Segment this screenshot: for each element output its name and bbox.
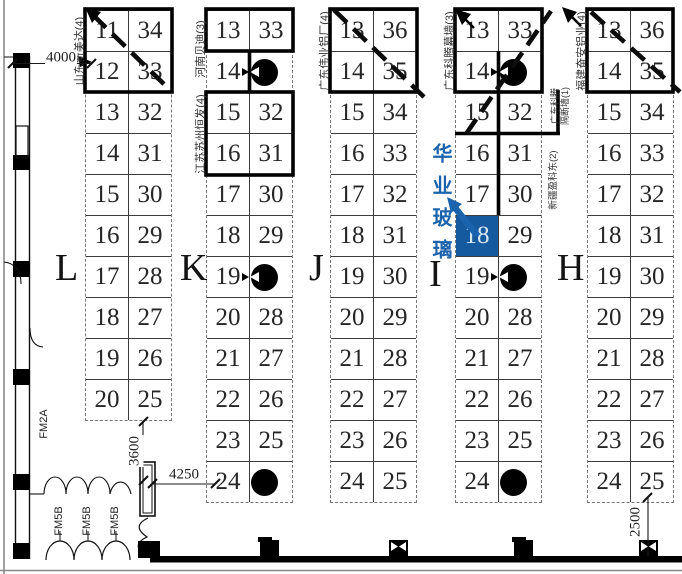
- pillar-cell-K: [250, 257, 292, 297]
- left-wall: [4, 53, 43, 559]
- booth-K-21[interactable]: 21: [207, 339, 250, 379]
- pillar-icon: [251, 469, 278, 496]
- booth-H-33[interactable]: 33: [631, 134, 673, 174]
- booth-row: 2028: [207, 297, 292, 338]
- booth-row: 2128: [588, 338, 673, 379]
- booth-row: 14: [456, 51, 541, 92]
- booth-H-15[interactable]: 15: [588, 93, 631, 133]
- booth-row: 1333: [207, 10, 292, 51]
- floorplan-canvas: 1134123313321431153016291728182719262025…: [0, 0, 682, 574]
- booth-J-22[interactable]: 22: [331, 380, 374, 420]
- exhibitor-label-i-side-line1: 广东科腾: [550, 87, 560, 125]
- booth-row: 2029: [331, 297, 416, 338]
- booth-K-23[interactable]: 23: [207, 421, 250, 461]
- booth-row: 19: [456, 256, 541, 297]
- booth-row: 1728: [86, 256, 171, 297]
- booth-J-24[interactable]: 24: [331, 462, 374, 502]
- booth-K-33[interactable]: 33: [250, 11, 292, 51]
- booth-J-19[interactable]: 19: [331, 257, 374, 297]
- booth-J-17[interactable]: 17: [331, 175, 374, 215]
- booth-row: 1532: [456, 92, 541, 133]
- booth-L-31[interactable]: 31: [129, 134, 171, 174]
- booth-row: 2425: [588, 461, 673, 502]
- pillar-cell-K: [250, 52, 292, 92]
- exhibitor-label-k-mid: 江苏苏州恒发(4): [192, 94, 208, 173]
- booth-row: 1333: [456, 10, 541, 51]
- booth-J-34[interactable]: 34: [374, 93, 416, 133]
- booth-H-20[interactable]: 20: [588, 298, 631, 338]
- booth-I-17[interactable]: 17: [456, 175, 499, 215]
- booth-H-31[interactable]: 31: [631, 216, 673, 256]
- booth-I-30[interactable]: 30: [499, 175, 541, 215]
- booth-J-25[interactable]: 25: [374, 462, 416, 502]
- booth-row: 1134: [86, 10, 171, 51]
- booth-row: 1534: [588, 92, 673, 133]
- booth-I-13[interactable]: 13: [456, 11, 499, 51]
- zone-letter-H: H: [557, 246, 584, 290]
- booth-H-34[interactable]: 34: [631, 93, 673, 133]
- booth-J-14[interactable]: 14: [331, 52, 374, 92]
- booth-row: 1431: [86, 133, 171, 174]
- booth-row: 1534: [331, 92, 416, 133]
- booth-I-26[interactable]: 26: [499, 380, 541, 420]
- booth-row: 1435: [588, 51, 673, 92]
- booth-I-28[interactable]: 28: [499, 298, 541, 338]
- booth-K-30[interactable]: 30: [250, 175, 292, 215]
- booth-L-12[interactable]: 12: [86, 52, 129, 92]
- booth-row: 2028: [456, 297, 541, 338]
- booth-row: 2025: [86, 379, 171, 420]
- booth-L-20[interactable]: 20: [86, 380, 129, 420]
- booth-row: 1332: [86, 92, 171, 133]
- booth-row: 19: [207, 256, 292, 297]
- booth-row: 1829: [207, 215, 292, 256]
- zone-H: 1336143515341633173218311930202921282227…: [587, 10, 674, 503]
- booth-row: 1629: [86, 215, 171, 256]
- callout-huaye-glass: 华业玻璃: [426, 143, 455, 271]
- booth-row: 1732: [588, 174, 673, 215]
- booth-J-32[interactable]: 32: [374, 175, 416, 215]
- booth-row: 2326: [588, 420, 673, 461]
- zone-K: 1333141532163117301829192028212722262325…: [206, 10, 293, 503]
- booth-H-24[interactable]: 24: [588, 462, 631, 502]
- booth-K-18[interactable]: 18: [207, 216, 250, 256]
- pillar-cell-K: [250, 462, 292, 502]
- booth-J-23[interactable]: 23: [331, 421, 374, 461]
- booth-row: 1827: [86, 297, 171, 338]
- booth-I-32[interactable]: 32: [499, 93, 541, 133]
- booth-row: 2227: [588, 379, 673, 420]
- booth-row: 24: [207, 461, 292, 502]
- booth-L-15[interactable]: 15: [86, 175, 129, 215]
- booth-H-22[interactable]: 22: [588, 380, 631, 420]
- booth-H-25[interactable]: 25: [631, 462, 673, 502]
- dimension-4250: 4250: [168, 467, 200, 484]
- booth-L-28[interactable]: 28: [129, 257, 171, 297]
- booth-J-29[interactable]: 29: [374, 298, 416, 338]
- booth-I-15[interactable]: 15: [456, 93, 499, 133]
- booth-H-18[interactable]: 18: [588, 216, 631, 256]
- booth-I-24[interactable]: 24: [456, 462, 499, 502]
- booth-I-27[interactable]: 27: [499, 339, 541, 379]
- booth-H-26[interactable]: 26: [631, 421, 673, 461]
- booth-I-33[interactable]: 33: [499, 11, 541, 51]
- booth-H-36[interactable]: 36: [631, 11, 673, 51]
- exhibitor-label-h-top: 福建奋安铝业(4): [573, 11, 589, 90]
- booth-K-15[interactable]: 15: [207, 93, 250, 133]
- booth-row: 2127: [456, 338, 541, 379]
- booth-K-24[interactable]: 24: [207, 462, 250, 502]
- booth-H-29[interactable]: 29: [631, 298, 673, 338]
- exhibitor-label-k-top: 河南贝迪(3): [192, 20, 208, 77]
- pillar-cell-I: [499, 462, 541, 502]
- booth-K-31[interactable]: 31: [250, 134, 292, 174]
- booth-J-31[interactable]: 31: [374, 216, 416, 256]
- zone-I: 1333141532163117301829192028212722262325…: [455, 10, 542, 503]
- booth-I-18[interactable]: 18: [456, 216, 499, 256]
- door-label-fm5b-2: FM5B: [81, 506, 93, 535]
- dimension-3600: 3600: [127, 435, 144, 467]
- exhibitor-label-i-side-line2: 隔断墙(1): [560, 87, 570, 125]
- booth-row: 1336: [331, 10, 416, 51]
- booth-row: 1631: [207, 133, 292, 174]
- booth-H-13[interactable]: 13: [588, 11, 631, 51]
- booth-J-13[interactable]: 13: [331, 11, 374, 51]
- booth-J-15[interactable]: 15: [331, 93, 374, 133]
- booth-H-19[interactable]: 19: [588, 257, 631, 297]
- zone-letter-K: K: [180, 246, 207, 290]
- booth-I-16[interactable]: 16: [456, 134, 499, 174]
- booth-H-21[interactable]: 21: [588, 339, 631, 379]
- booth-row: 14: [207, 51, 292, 92]
- booth-I-29[interactable]: 29: [499, 216, 541, 256]
- booth-row: 1831: [331, 215, 416, 256]
- booth-row: 1831: [588, 215, 673, 256]
- booth-row: 1930: [331, 256, 416, 297]
- booth-K-28[interactable]: 28: [250, 298, 292, 338]
- booth-row: 1631: [456, 133, 541, 174]
- booth-row: 1633: [588, 133, 673, 174]
- booth-K-13[interactable]: 13: [207, 11, 250, 51]
- door-label-fm2a: FM2A: [38, 409, 50, 438]
- booth-L-32[interactable]: 32: [129, 93, 171, 133]
- booth-K-29[interactable]: 29: [250, 216, 292, 256]
- door-arcs: [30, 462, 160, 560]
- booth-row: 2227: [331, 379, 416, 420]
- door-label-fm5b-3: FM5B: [109, 506, 121, 535]
- exhibitor-label-i-side: 广东科腾 隔断墙(1): [550, 87, 570, 125]
- door-label-fm5b-1: FM5B: [53, 506, 65, 535]
- booth-L-26[interactable]: 26: [129, 339, 171, 379]
- zone-J: 1336143515341633173218311930202921282227…: [330, 10, 417, 503]
- booth-row: 1435: [331, 51, 416, 92]
- pillar-icon: [251, 59, 278, 86]
- booth-row: 2127: [207, 338, 292, 379]
- booth-row: 1336: [588, 10, 673, 51]
- booth-J-21[interactable]: 21: [331, 339, 374, 379]
- booth-K-22[interactable]: 22: [207, 380, 250, 420]
- zone-letter-J: J: [309, 246, 324, 290]
- booth-row: 1829: [456, 215, 541, 256]
- booth-J-20[interactable]: 20: [331, 298, 374, 338]
- pillar-icon: [500, 264, 527, 291]
- booth-L-16[interactable]: 16: [86, 216, 129, 256]
- booth-L-13[interactable]: 13: [86, 93, 129, 133]
- booth-J-30[interactable]: 30: [374, 257, 416, 297]
- booth-K-16[interactable]: 16: [207, 134, 250, 174]
- booth-K-25[interactable]: 25: [250, 421, 292, 461]
- booth-L-33[interactable]: 33: [129, 52, 171, 92]
- booth-J-26[interactable]: 26: [374, 421, 416, 461]
- pillar-cell-I: [499, 257, 541, 297]
- booth-H-35[interactable]: 35: [631, 52, 673, 92]
- door-arc: [30, 328, 43, 347]
- booth-H-28[interactable]: 28: [631, 339, 673, 379]
- booth-H-23[interactable]: 23: [588, 421, 631, 461]
- zone-letter-L: L: [55, 246, 78, 290]
- booth-row: 2128: [331, 338, 416, 379]
- booth-row: 2226: [456, 379, 541, 420]
- booth-J-18[interactable]: 18: [331, 216, 374, 256]
- exhibitor-label-i-side2: 新疆盈科东(2): [545, 150, 559, 209]
- booth-H-16[interactable]: 16: [588, 134, 631, 174]
- booth-K-27[interactable]: 27: [250, 339, 292, 379]
- booth-row: 2326: [331, 420, 416, 461]
- door-arc: [4, 262, 21, 284]
- booth-K-17[interactable]: 17: [207, 175, 250, 215]
- pillar-cell-I: [499, 52, 541, 92]
- pillar-icon: [500, 469, 527, 496]
- booth-row: 2325: [207, 420, 292, 461]
- exhibitor-label-i-top: 广东科腾幕墙(3): [441, 11, 457, 90]
- booth-row: 1233: [86, 51, 171, 92]
- booth-row: 2325: [456, 420, 541, 461]
- pillar-icon: [500, 59, 527, 86]
- booth-I-31[interactable]: 31: [499, 134, 541, 174]
- booth-H-32[interactable]: 32: [631, 175, 673, 215]
- booth-I-20[interactable]: 20: [456, 298, 499, 338]
- booth-row: 1532: [207, 92, 292, 133]
- booth-K-26[interactable]: 26: [250, 380, 292, 420]
- booth-J-27[interactable]: 27: [374, 380, 416, 420]
- booth-row: 1732: [331, 174, 416, 215]
- booth-H-30[interactable]: 30: [631, 257, 673, 297]
- booth-row: 1730: [207, 174, 292, 215]
- booth-row: 2226: [207, 379, 292, 420]
- booth-I-21[interactable]: 21: [456, 339, 499, 379]
- booth-J-35[interactable]: 35: [374, 52, 416, 92]
- booth-L-14[interactable]: 14: [86, 134, 129, 174]
- bottom-wall: [150, 537, 682, 563]
- booth-row: 2029: [588, 297, 673, 338]
- booth-row: 1530: [86, 174, 171, 215]
- zone-L: 1134123313321431153016291728182719262025: [85, 10, 172, 421]
- booth-L-34[interactable]: 34: [129, 11, 171, 51]
- booth-L-19[interactable]: 19: [86, 339, 129, 379]
- booth-K-20[interactable]: 20: [207, 298, 250, 338]
- booth-I-22[interactable]: 22: [456, 380, 499, 420]
- dimension-2500: 2500: [628, 506, 645, 538]
- exhibitor-label-j-top: 广东伟业铝厂(4): [316, 11, 332, 90]
- pillar-icon: [251, 264, 278, 291]
- booth-J-33[interactable]: 33: [374, 134, 416, 174]
- booth-H-17[interactable]: 17: [588, 175, 631, 215]
- booth-row: 1730: [456, 174, 541, 215]
- booth-row: 2425: [331, 461, 416, 502]
- booth-J-28[interactable]: 28: [374, 339, 416, 379]
- booth-L-17[interactable]: 17: [86, 257, 129, 297]
- booth-L-25[interactable]: 25: [129, 380, 171, 420]
- booth-row: 1930: [588, 256, 673, 297]
- booth-row: 24: [456, 461, 541, 502]
- booth-row: 1926: [86, 338, 171, 379]
- booth-L-29[interactable]: 29: [129, 216, 171, 256]
- booth-L-11[interactable]: 11: [86, 11, 129, 51]
- booth-J-36[interactable]: 36: [374, 11, 416, 51]
- booth-H-14[interactable]: 14: [588, 52, 631, 92]
- booth-J-16[interactable]: 16: [331, 134, 374, 174]
- booth-I-23[interactable]: 23: [456, 421, 499, 461]
- booth-K-32[interactable]: 32: [250, 93, 292, 133]
- dimension-4000: 4000: [45, 50, 77, 67]
- booth-I-25[interactable]: 25: [499, 421, 541, 461]
- booth-H-27[interactable]: 27: [631, 380, 673, 420]
- booth-L-30[interactable]: 30: [129, 175, 171, 215]
- booth-row: 1633: [331, 133, 416, 174]
- booth-L-18[interactable]: 18: [86, 298, 129, 338]
- booth-L-27[interactable]: 27: [129, 298, 171, 338]
